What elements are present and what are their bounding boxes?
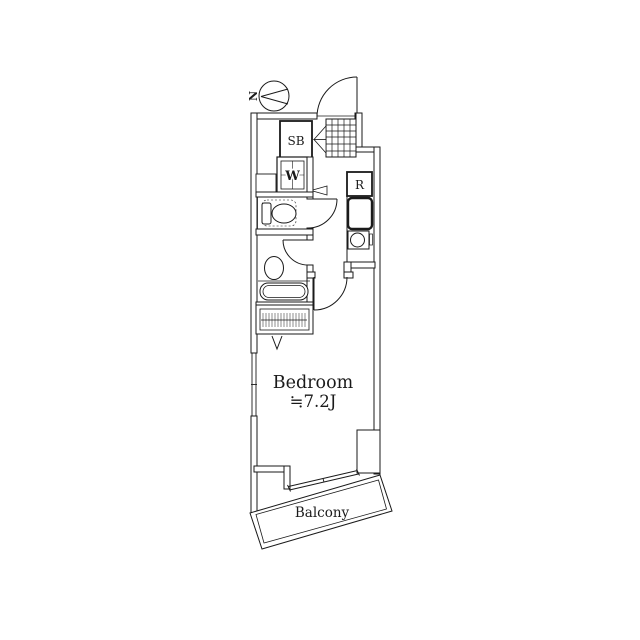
wall-pillar-bottom-right [357,430,380,473]
pipe-space [256,174,276,193]
refrigerator-label: R [355,178,365,192]
wall-bottom-left [254,466,288,472]
wall-left-lower [251,416,257,513]
bedroom-size-label: ≒7.2J [290,392,337,411]
north-label: N [247,91,260,101]
toilet-bottom-wall [256,229,313,235]
toilet-top-wall [256,192,313,197]
floor-plan-page: SB W R Bedroom ≒7.2J Balcony N [0,0,640,640]
wall-right-main [374,147,380,474]
toilet-tank-icon [262,203,271,224]
canvas-background [0,0,640,640]
stove-base [348,231,369,249]
wall-top-left [251,113,317,119]
bedroom-wall-right-jamb [344,272,353,278]
washer-label: W [284,169,300,184]
wall-bottom-left-stub [284,466,290,489]
bedroom-label: Bedroom [273,373,354,393]
wall-right-upper [356,113,362,152]
toilet-bowl-icon [272,204,296,223]
genkan-tile-floor [326,119,356,157]
washbasin-icon [265,257,284,280]
balcony-label: Balcony [295,505,350,521]
kitchen-sink-icon [348,198,372,229]
shoe-box-label: SB [287,134,304,148]
floor-plan-drawing: SB W R Bedroom ≒7.2J Balcony N [0,0,640,640]
